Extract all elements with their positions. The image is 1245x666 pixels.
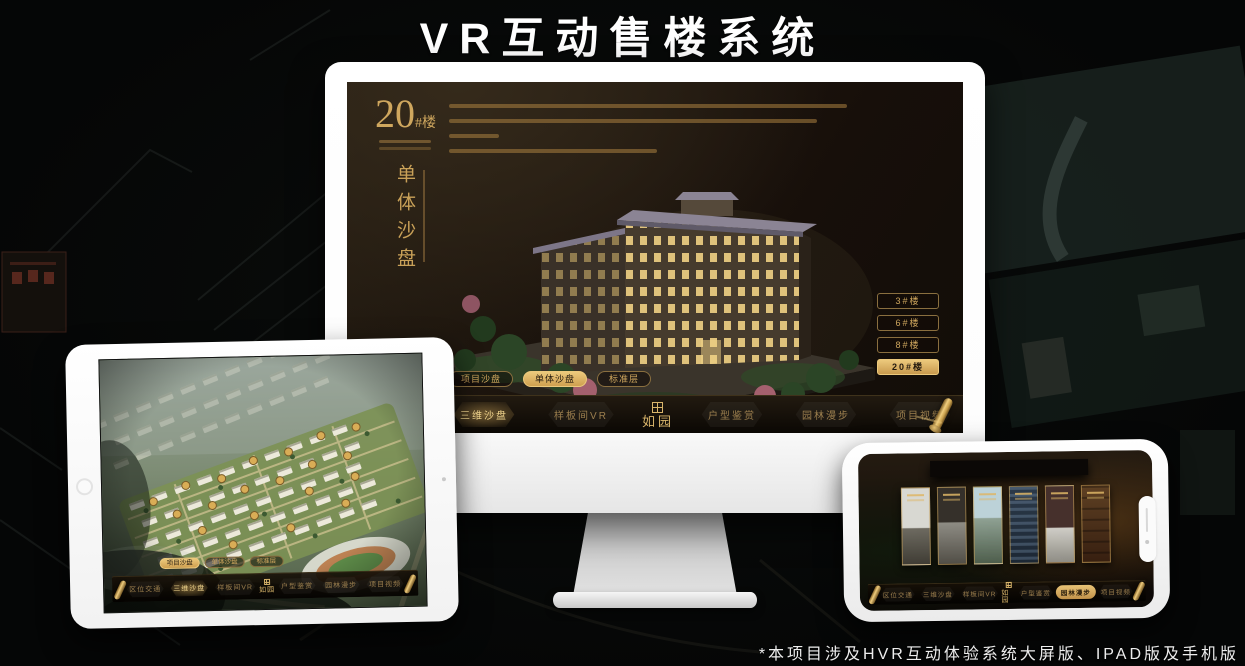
gallery-panel[interactable] bbox=[937, 487, 967, 565]
tablet-screen: 项目沙盘 单体沙盘 标准层 区位交通 三维沙盘 样板间VR 如园 户型鉴赏 园林… bbox=[98, 353, 427, 614]
subtab-single-sandtable[interactable]: 单体沙盘 bbox=[523, 371, 587, 387]
nav-item-project-video[interactable]: 项目视频 bbox=[1096, 584, 1136, 599]
nav-item-floorplans[interactable]: 户型鉴赏 bbox=[696, 402, 768, 427]
floor-button-20[interactable]: 20#楼 bbox=[877, 359, 939, 375]
nav-item-model-room-vr[interactable]: 样板间VR bbox=[542, 402, 620, 427]
nav-item-garden-stroll[interactable]: 园林漫步 bbox=[1056, 585, 1096, 600]
brand-logo: 如园 bbox=[259, 579, 275, 594]
background-plaque bbox=[2, 252, 66, 332]
paragraph-line bbox=[449, 149, 657, 153]
tablet-camera-icon bbox=[442, 477, 446, 481]
subtab-single-sandtable[interactable]: 单体沙盘 bbox=[205, 556, 245, 568]
pavilion-beam-silhouette bbox=[930, 459, 1088, 477]
nav-item-3d-sandtable[interactable]: 三维沙盘 bbox=[448, 402, 520, 427]
building-number: 20 bbox=[375, 91, 415, 136]
subtab-project-sandtable[interactable]: 项目沙盘 bbox=[449, 371, 513, 387]
seal-icon bbox=[264, 579, 270, 585]
monitor-stand-base bbox=[553, 592, 757, 608]
nav-item-3d-sandtable[interactable]: 三维沙盘 bbox=[918, 587, 958, 602]
nav-item-location[interactable]: 区位交通 bbox=[878, 587, 918, 602]
speaker-slit-icon bbox=[1146, 508, 1148, 532]
nav-item-floorplans[interactable]: 户型鉴赏 bbox=[1016, 585, 1056, 600]
building-title: 20#楼 bbox=[375, 94, 436, 143]
nav-item-project-video[interactable]: 项目视频 bbox=[363, 575, 407, 592]
camera-dot-icon bbox=[1145, 540, 1149, 544]
phone-frame: 区位交通 三维沙盘 样板间VR 如园 户型鉴赏 园林漫步 项目视频 bbox=[842, 439, 1170, 623]
scroll-icon[interactable] bbox=[113, 579, 127, 600]
phone-nav-bar: 区位交通 三维沙盘 样板间VR 如园 户型鉴赏 园林漫步 项目视频 bbox=[868, 580, 1146, 605]
building-number-suffix: #楼 bbox=[415, 116, 436, 131]
scroll-icon[interactable] bbox=[1132, 581, 1146, 602]
brand-logo-text: 如园 bbox=[259, 587, 275, 594]
nav-item-garden-stroll[interactable]: 园林漫步 bbox=[790, 402, 862, 427]
subtab-project-sandtable[interactable]: 项目沙盘 bbox=[160, 557, 200, 569]
monitor-subtab-group: 项目沙盘 单体沙盘 标准层 bbox=[449, 371, 651, 387]
nav-item-3d-sandtable[interactable]: 三维沙盘 bbox=[167, 580, 211, 597]
scroll-icon[interactable] bbox=[403, 573, 417, 594]
gallery-panel[interactable] bbox=[1081, 485, 1111, 563]
gallery-panel[interactable] bbox=[1009, 486, 1039, 564]
floor-button-6[interactable]: 6#楼 bbox=[877, 315, 939, 331]
paragraph-line bbox=[449, 134, 499, 138]
brand-logo: 如园 bbox=[642, 402, 674, 428]
floor-button-3[interactable]: 3#楼 bbox=[877, 293, 939, 309]
subtab-standard-floor[interactable]: 标准层 bbox=[597, 371, 651, 387]
footnote: *本项目涉及HVR互动体验系统大屏版、IPAD版及手机版 bbox=[759, 640, 1239, 664]
floor-button-8[interactable]: 8#楼 bbox=[877, 337, 939, 353]
gallery-panel[interactable] bbox=[973, 486, 1003, 564]
seal-icon bbox=[1005, 582, 1011, 588]
brand-logo: 如园 bbox=[1001, 582, 1016, 604]
tablet-frame: 项目沙盘 单体沙盘 标准层 区位交通 三维沙盘 样板间VR 如园 户型鉴赏 园林… bbox=[65, 337, 459, 629]
gallery-panel[interactable] bbox=[1045, 485, 1075, 563]
paragraph-line bbox=[449, 119, 817, 123]
nav-item-floorplans[interactable]: 户型鉴赏 bbox=[275, 577, 319, 594]
brand-logo-text: 如园 bbox=[642, 415, 674, 428]
vr-gallery-panels bbox=[901, 485, 1111, 566]
nav-item-location[interactable]: 区位交通 bbox=[123, 581, 167, 598]
page-title: VR互动售楼系统 bbox=[0, 4, 1245, 66]
scroll-icon[interactable] bbox=[868, 585, 882, 606]
paragraph-line bbox=[449, 104, 847, 108]
gallery-panel[interactable] bbox=[901, 487, 931, 565]
tablet-home-button[interactable] bbox=[76, 478, 93, 495]
description-paragraph bbox=[449, 104, 847, 164]
nav-item-model-room-vr[interactable]: 样板间VR bbox=[958, 586, 1002, 601]
seal-icon bbox=[652, 402, 663, 413]
phone-screen: 区位交通 三维沙盘 样板间VR 如园 户型鉴赏 园林漫步 项目视频 bbox=[858, 450, 1154, 611]
brand-logo-text: 如园 bbox=[1001, 590, 1016, 604]
nav-item-garden-stroll[interactable]: 园林漫步 bbox=[319, 576, 363, 593]
floor-button-group: 3#楼 6#楼 8#楼 20#楼 bbox=[877, 293, 939, 375]
phone-notch bbox=[1139, 495, 1157, 561]
subtab-standard-floor[interactable]: 标准层 bbox=[250, 556, 284, 568]
building-3d-render-image bbox=[413, 164, 889, 430]
subtitle-english-caption bbox=[379, 140, 431, 143]
nav-item-model-room-vr[interactable]: 样板间VR bbox=[211, 579, 259, 596]
